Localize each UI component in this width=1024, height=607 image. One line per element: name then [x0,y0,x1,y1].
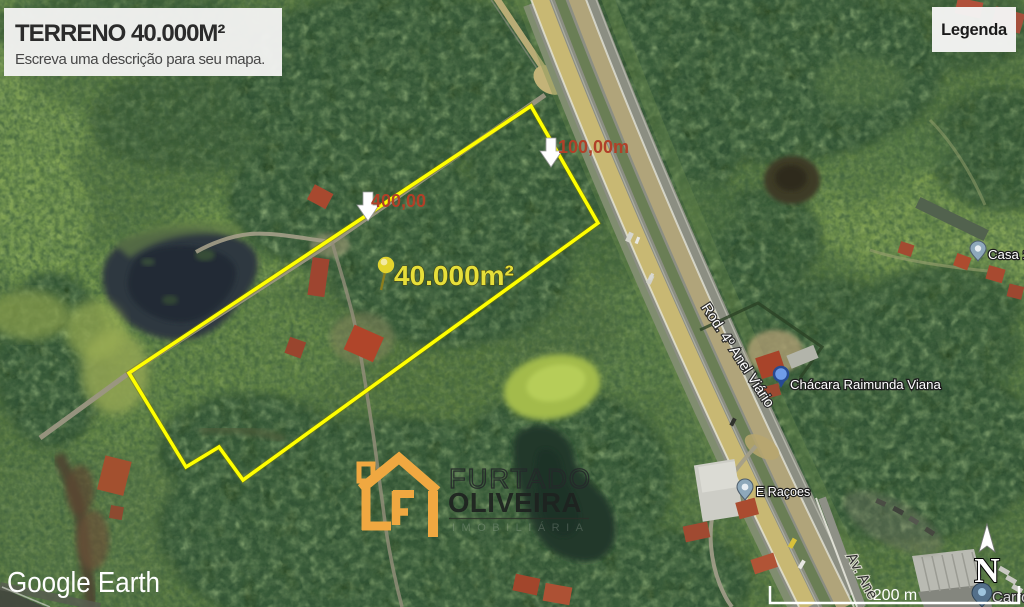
svg-text:40.000m²: 40.000m² [394,260,514,291]
svg-text:E Raçoes: E Raçoes [756,485,810,499]
svg-text:Google Earth: Google Earth [7,567,160,599]
svg-text:IMOBILIÁRIA: IMOBILIÁRIA [452,521,590,534]
svg-text:Escreva uma descrição para seu: Escreva uma descrição para seu mapa. [15,51,265,68]
svg-text:OLIVEIRA: OLIVEIRA [448,487,582,518]
svg-text:400,00: 400,00 [371,191,426,211]
svg-text:N: N [974,551,999,590]
svg-text:Legenda: Legenda [941,21,1008,39]
svg-text:Casa 1: Casa 1 [988,247,1024,262]
svg-text:Chácara Raimunda Viana: Chácara Raimunda Viana [790,377,941,392]
svg-text:100,00m: 100,00m [558,137,629,157]
svg-text:TERRENO 40.000M²: TERRENO 40.000M² [15,20,225,47]
svg-text:200 m: 200 m [873,587,917,604]
